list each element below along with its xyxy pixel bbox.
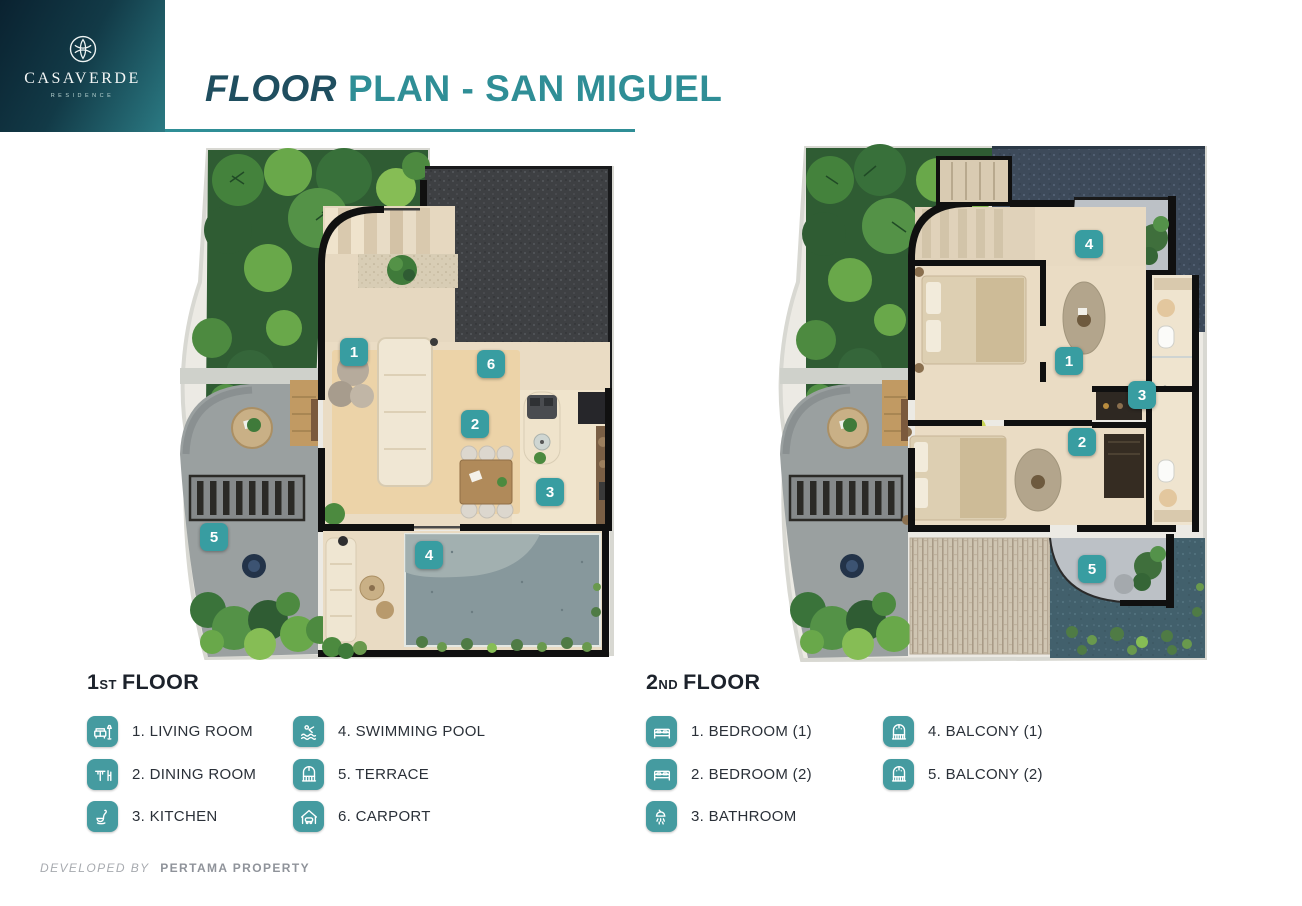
first-floor-plan-drawing: [172, 142, 642, 677]
first-floor-plan-image: 1 2 3 4 5 6: [172, 142, 642, 677]
legend-item-label: 1. BEDROOM (1): [691, 723, 812, 740]
second-floor-plan-drawing: [772, 142, 1212, 677]
legend-item-bedroom-1: 1. BEDROOM (1): [646, 716, 812, 747]
room-number-badge: 4: [415, 541, 443, 569]
title-divider: [165, 129, 635, 132]
balcony-arch-icon: [883, 716, 914, 747]
room-number-badge: 2: [1068, 428, 1096, 456]
legend-item-label: 2. DINING ROOM: [132, 766, 256, 783]
room-number-badge: 3: [1128, 381, 1156, 409]
page-title-rest: PLAN - SAN MIGUEL: [348, 68, 722, 109]
legend-item-label: 1. LIVING ROOM: [132, 723, 253, 740]
developed-by-text: DEVELOPED BY: [40, 861, 150, 875]
legend-item-swimming-pool: 4. SWIMMING POOL: [293, 716, 485, 747]
developer-name: PERTAMA PROPERTY: [160, 861, 310, 875]
floor-number: 1: [87, 670, 99, 694]
legend-item-dining-room: 2. DINING ROOM: [87, 759, 256, 790]
page-title-emphasis: FLOOR: [205, 68, 337, 109]
room-number-badge: 1: [340, 338, 368, 366]
first-floor-heading: 1STFLOOR: [87, 670, 557, 695]
room-number-badge: 5: [1078, 555, 1106, 583]
floor-number: 2: [646, 670, 658, 694]
bed-icon: [646, 759, 677, 790]
swimmer-icon: [293, 716, 324, 747]
floor-ordinal: ST: [99, 677, 117, 692]
room-number-badge: 1: [1055, 347, 1083, 375]
legend-item-label: 3. KITCHEN: [132, 808, 218, 825]
room-number-badge: 6: [477, 350, 505, 378]
floorplan-flyer: CASAVERDE RESIDENCE FLOORPLAN - SAN MIGU…: [0, 0, 1302, 906]
second-floor-heading: 2NDFLOOR: [646, 670, 1116, 695]
room-number-badge: 3: [536, 478, 564, 506]
brand-name: CASAVERDE: [24, 70, 140, 88]
balcony-arch-icon: [883, 759, 914, 790]
dining-table-icon: [87, 759, 118, 790]
legend-item-balcony-1: 4. BALCONY (1): [883, 716, 1043, 747]
arch-window-icon: [293, 759, 324, 790]
sofa-icon: [87, 716, 118, 747]
legend-item-label: 5. TERRACE: [338, 766, 429, 783]
floor-word: FLOOR: [683, 670, 760, 694]
legend-item-bedroom-2: 2. BEDROOM (2): [646, 759, 812, 790]
page-title: FLOORPLAN - SAN MIGUEL: [205, 68, 722, 110]
shower-icon: [646, 801, 677, 832]
legend-item-terrace: 5. TERRACE: [293, 759, 485, 790]
room-number-badge: 4: [1075, 230, 1103, 258]
carport-icon: [293, 801, 324, 832]
developer-credit: DEVELOPED BY PERTAMA PROPERTY: [40, 861, 310, 875]
legend-item-label: 3. BATHROOM: [691, 808, 797, 825]
legend-item-label: 4. BALCONY (1): [928, 723, 1043, 740]
brand-logo-block: CASAVERDE RESIDENCE: [0, 0, 165, 132]
casaverde-logo-icon: [68, 34, 98, 64]
legend-item-kitchen: 3. KITCHEN: [87, 801, 256, 832]
floor-ordinal: ND: [658, 677, 678, 692]
legend-item-label: 6. CARPORT: [338, 808, 431, 825]
legend-item-balcony-2: 5. BALCONY (2): [883, 759, 1043, 790]
legend-item-carport: 6. CARPORT: [293, 801, 485, 832]
room-number-badge: 5: [200, 523, 228, 551]
second-floor-plan-image: 1 2 3 4 5: [772, 142, 1212, 677]
legend-item-living-room: 1. LIVING ROOM: [87, 716, 256, 747]
floor-word: FLOOR: [122, 670, 199, 694]
second-floor-legend: 2NDFLOOR 1. BEDROOM (1): [646, 670, 1116, 855]
first-floor-legend: 1STFLOOR 1. LIVING ROOM 2. DINING: [87, 670, 557, 855]
room-number-badge: 2: [461, 410, 489, 438]
bed-icon: [646, 716, 677, 747]
legend-item-label: 2. BEDROOM (2): [691, 766, 812, 783]
brand-tagline: RESIDENCE: [51, 93, 115, 99]
legend-item-label: 4. SWIMMING POOL: [338, 723, 485, 740]
kitchen-ladle-icon: [87, 801, 118, 832]
legend-item-label: 5. BALCONY (2): [928, 766, 1043, 783]
legend-item-bathroom: 3. BATHROOM: [646, 801, 812, 832]
